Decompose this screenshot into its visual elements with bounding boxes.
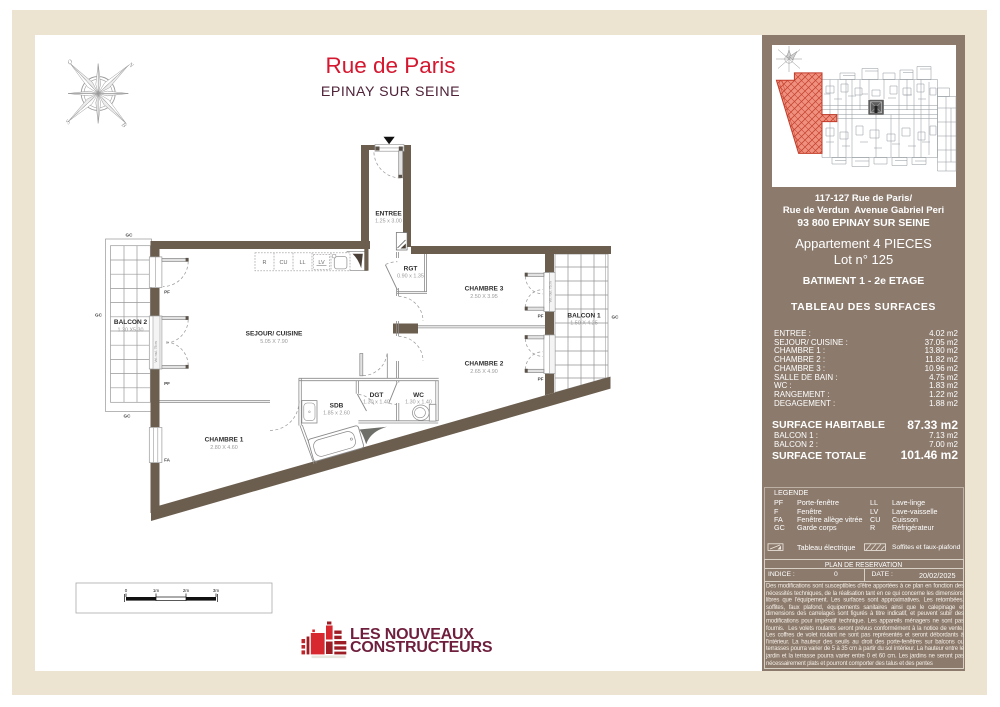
svg-text:PF: PF xyxy=(538,314,544,319)
svg-text:Vol. roul. 75cm: Vol. roul. 75cm xyxy=(549,281,553,302)
svg-text:DGT: DGT xyxy=(370,392,384,399)
svg-text:2.65 X 4.90: 2.65 X 4.90 xyxy=(470,369,498,375)
svg-text:1.25 x 3.00: 1.25 x 3.00 xyxy=(375,219,402,225)
svg-text:LL: LL xyxy=(299,260,305,266)
svg-text:PF: PF xyxy=(164,381,170,386)
svg-text:1.30 x 1.40: 1.30 x 1.40 xyxy=(363,400,390,406)
svg-text:PF: PF xyxy=(538,377,544,382)
svg-text:CHAMBRE 1: CHAMBRE 1 xyxy=(205,437,244,444)
svg-text:BALCON 1: BALCON 1 xyxy=(567,313,601,320)
svg-text:CHAMBRE 2: CHAMBRE 2 xyxy=(465,361,504,368)
svg-text:CU: CU xyxy=(280,260,288,266)
svg-text:N: N xyxy=(126,61,135,70)
svg-text:1.30 X5.30: 1.30 X5.30 xyxy=(117,328,143,334)
svg-text:1.30 x 1.40: 1.30 x 1.40 xyxy=(405,400,432,406)
svg-text:B: B xyxy=(120,121,128,129)
svg-text:GC: GC xyxy=(95,313,103,318)
svg-text:0.90 x 1.35: 0.90 x 1.35 xyxy=(397,274,424,280)
svg-text:CHAMBRE 3: CHAMBRE 3 xyxy=(465,286,504,293)
svg-text:3m: 3m xyxy=(213,588,220,593)
svg-text:SEJOUR/ CUISINE: SEJOUR/ CUISINE xyxy=(246,331,303,338)
svg-text:PF: PF xyxy=(164,290,170,295)
svg-text:2m: 2m xyxy=(183,588,190,593)
svg-text:BALCON 2: BALCON 2 xyxy=(114,319,148,326)
svg-text:1.50 X 4.25: 1.50 X 4.25 xyxy=(570,321,598,327)
svg-text:LV: LV xyxy=(318,260,325,266)
svg-text:ENTREE: ENTREE xyxy=(375,211,402,218)
svg-text:GC: GC xyxy=(126,233,134,238)
svg-text:WC: WC xyxy=(413,392,424,399)
svg-text:GC: GC xyxy=(612,315,620,320)
svg-text:Vol. roul. 75cm: Vol. roul. 75cm xyxy=(154,341,158,362)
svg-text:SDB: SDB xyxy=(330,403,344,410)
svg-text:2.80 X 4.60: 2.80 X 4.60 xyxy=(210,445,238,451)
svg-text:FA: FA xyxy=(164,458,171,463)
svg-text:O: O xyxy=(66,58,74,66)
svg-text:R: R xyxy=(263,260,267,266)
svg-text:5.05 X 7.90: 5.05 X 7.90 xyxy=(260,339,288,345)
svg-text:RGT: RGT xyxy=(404,266,418,273)
svg-text:1.85 x 2.60: 1.85 x 2.60 xyxy=(323,411,350,417)
svg-text:1m: 1m xyxy=(153,588,160,593)
svg-text:GC: GC xyxy=(124,414,132,419)
svg-text:2.50 X 3.95: 2.50 X 3.95 xyxy=(470,294,498,300)
